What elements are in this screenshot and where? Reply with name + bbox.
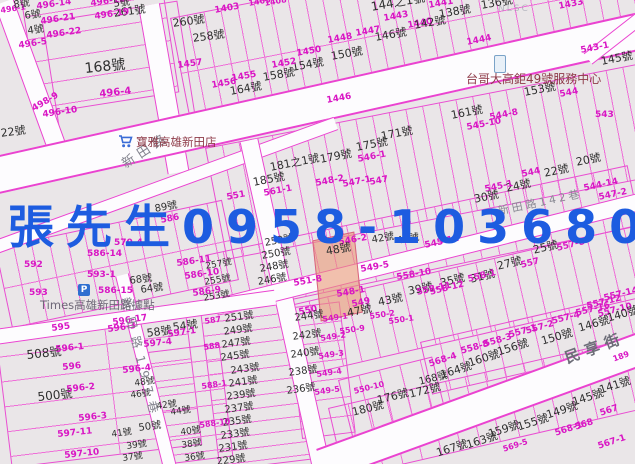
parcel-label: 593 [29,289,48,298]
contact-overlay-text: 張先生0958-103680 [8,191,635,257]
phone-icon [494,55,506,73]
parking-icon: P [78,284,90,296]
parcel-label: 593-1 [87,271,116,280]
poi-taiwan-mobile[interactable]: 台哥大高鉅49號服務中心 [466,73,601,85]
map-canvas[interactable]: 496-18號496-14496-185號261號6號496-21496-194… [0,0,635,464]
parcel-label: 586-15 [98,287,133,296]
parcel-label: 22號 [0,125,26,139]
cart-icon [119,135,133,151]
poi-times-label: Times高雄新田路據點 [40,300,155,312]
parcel-label: 168號 [84,58,126,76]
poi-label: 寶雅高雄新田店 [136,137,217,149]
parcel-label: 229號 [216,454,246,464]
poi-times-parking[interactable]: P [78,284,90,296]
parcel-label: 543 [595,111,614,120]
parcel-label: 597-10 [64,448,100,461]
parcel-label: 36號 [184,452,206,464]
poi-label: 台哥大高鉅49號服務中心 [466,73,601,85]
parcel-label: 37號 [122,452,144,464]
parcel-label: 592 [24,261,43,270]
poi-poya-store[interactable]: 寶雅高雄新田店 [119,135,217,151]
poi-label: Times高雄新田路據點 [40,300,155,312]
watermark-text: NLSC [498,4,530,14]
parcel-label: 567-1 [597,434,627,451]
